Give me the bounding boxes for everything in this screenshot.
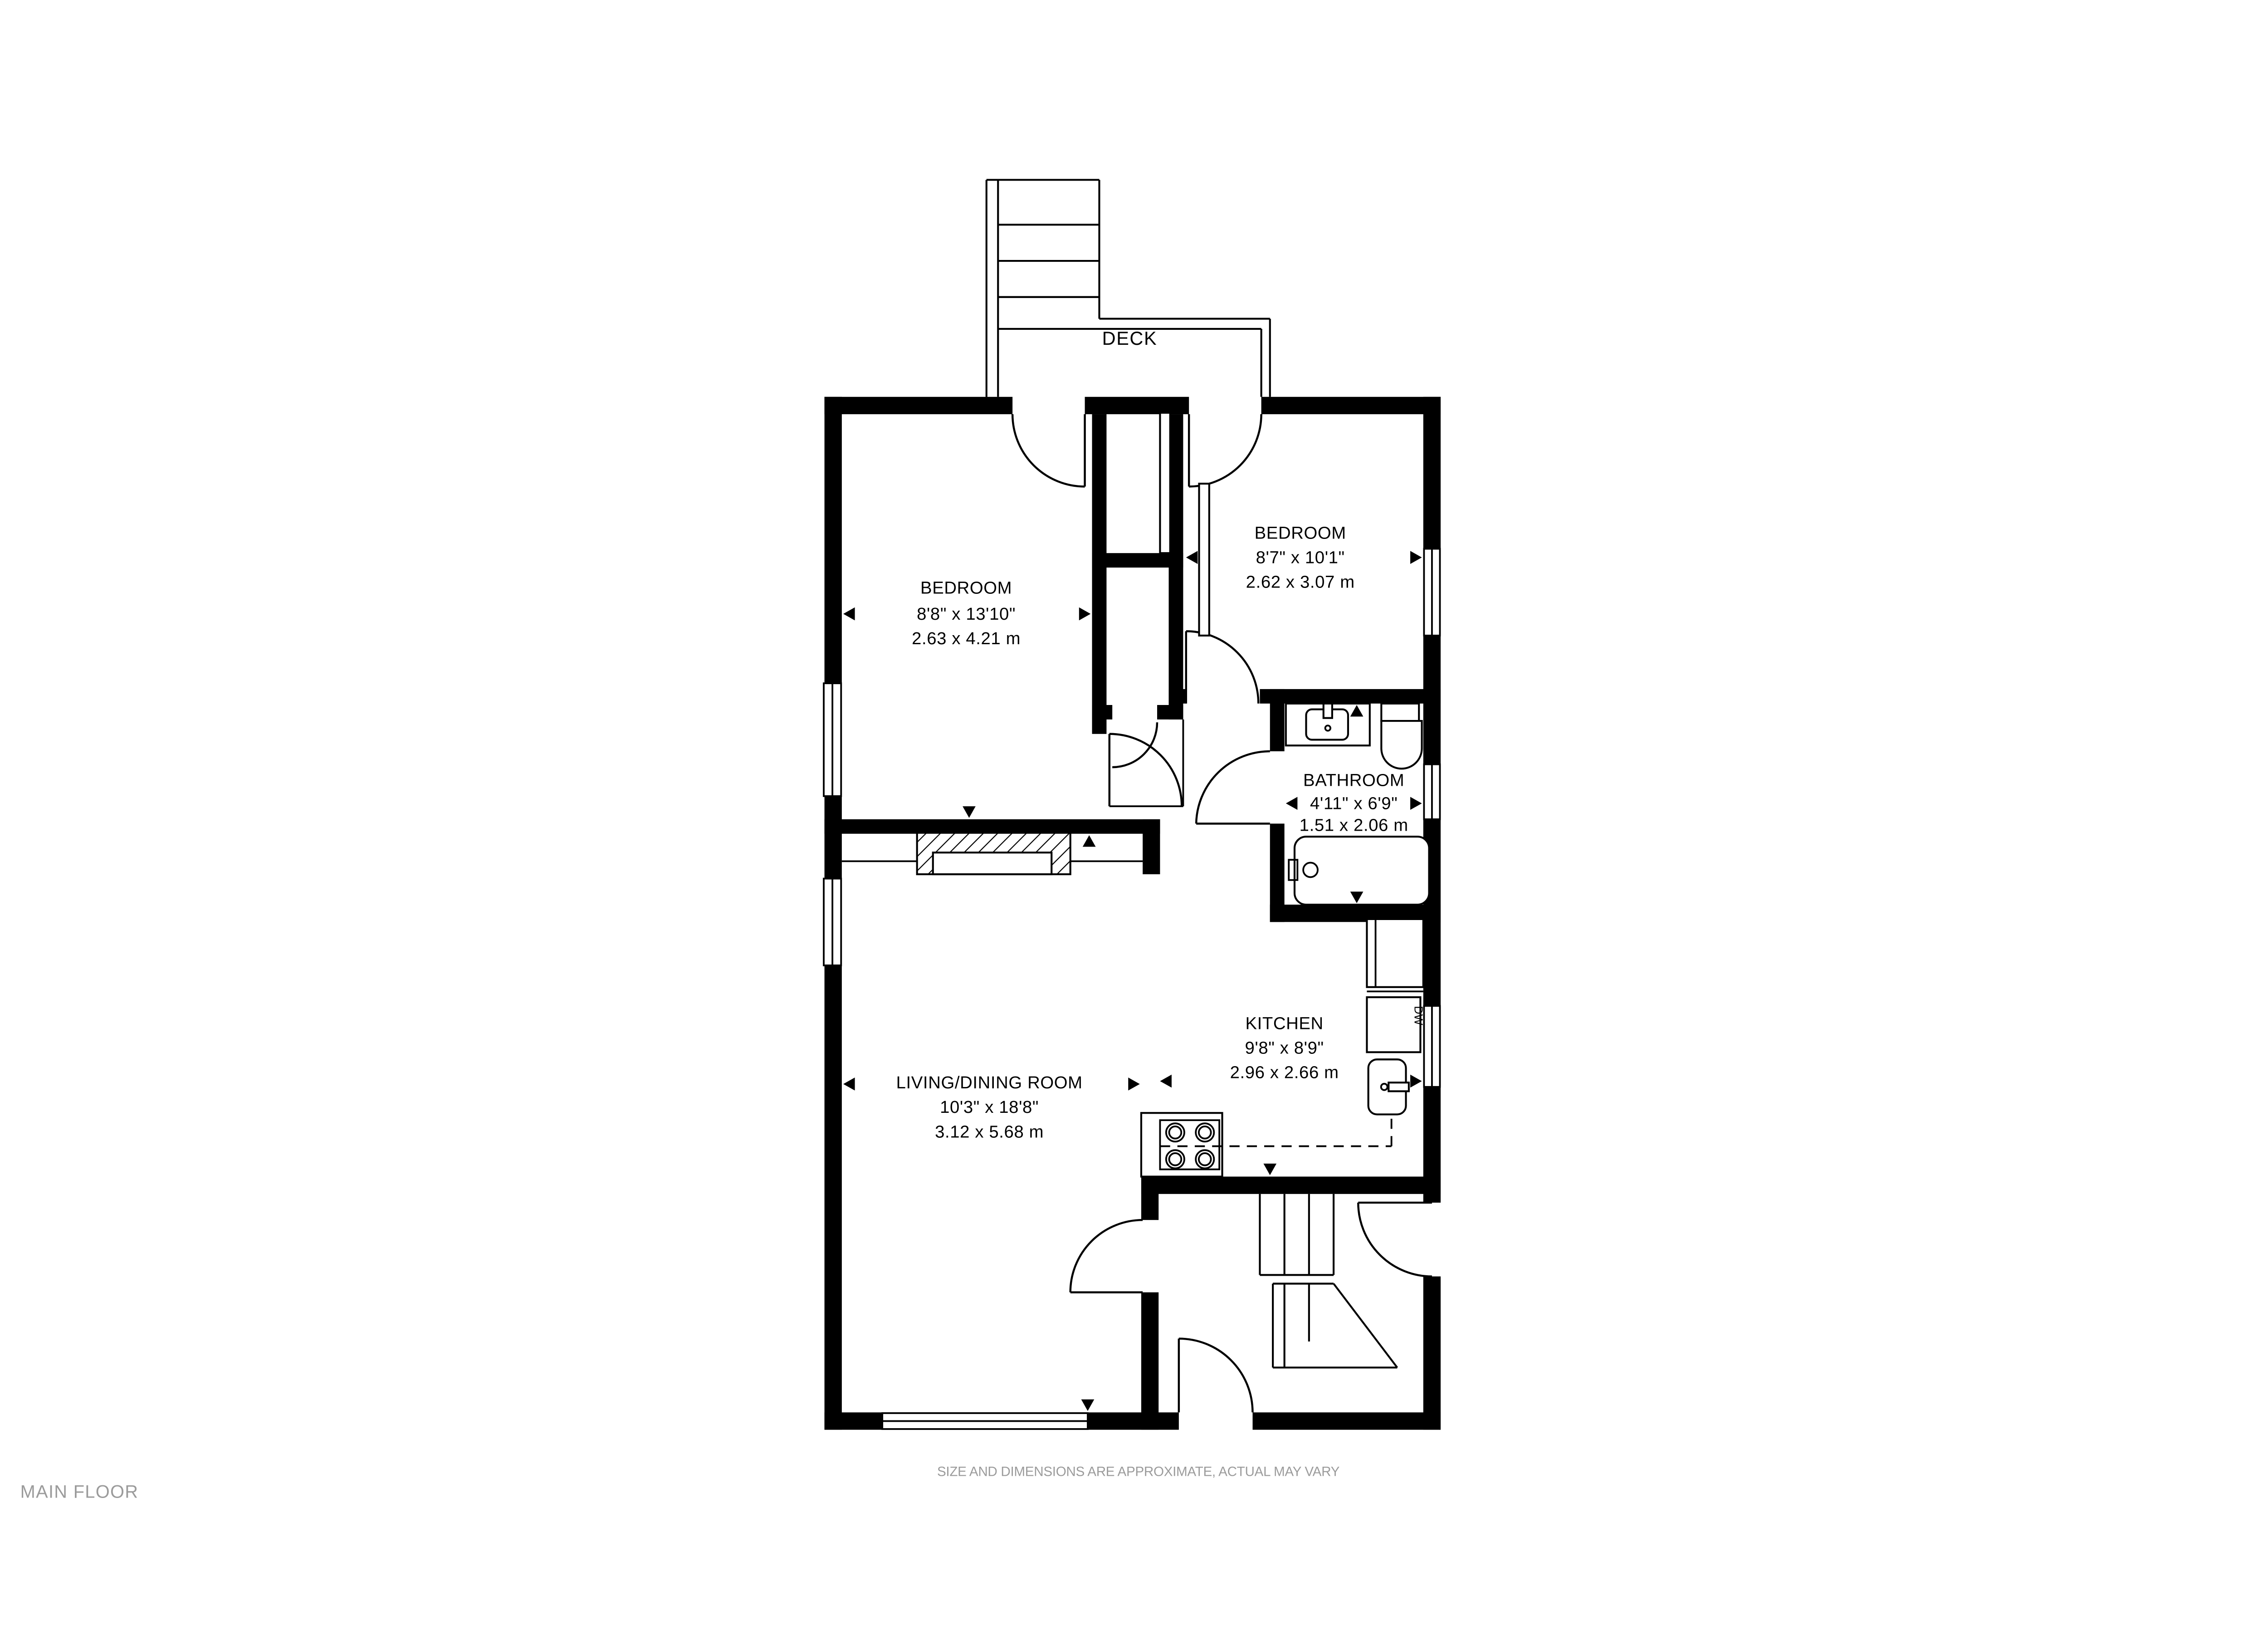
fireplace bbox=[917, 832, 1070, 874]
stair-cut-line bbox=[1334, 1284, 1397, 1368]
window-kitchen bbox=[1424, 1006, 1440, 1087]
wall-segment bbox=[1252, 1412, 1441, 1429]
room-dims-imperial: 9'8" x 8'9" bbox=[1245, 1038, 1324, 1057]
label-kitchen: KITCHEN 9'8" x 8'9" 2.96 x 2.66 m bbox=[1230, 1013, 1339, 1082]
dim-arrow-left bbox=[1160, 1075, 1172, 1088]
wall-segment bbox=[825, 965, 842, 1430]
floorplan-page: DECK bbox=[0, 0, 2268, 1640]
interior-walls bbox=[825, 414, 1441, 1430]
stove bbox=[1141, 1113, 1222, 1176]
room-name: BATHROOM bbox=[1303, 771, 1404, 790]
room-dims-metric: 2.63 x 4.21 m bbox=[912, 629, 1021, 648]
door-bedroom-right-hall bbox=[1186, 631, 1258, 703]
fireplace-firebox bbox=[933, 852, 1051, 874]
wall-segment bbox=[1088, 1412, 1179, 1429]
window-bathroom bbox=[1424, 764, 1440, 819]
wall-segment bbox=[1270, 689, 1285, 751]
label-living-dining: LIVING/DINING ROOM 10'3" x 18'8" 3.12 x … bbox=[896, 1073, 1083, 1141]
wall-segment bbox=[1157, 705, 1183, 720]
room-dims-imperial: 4'11" x 6'9" bbox=[1310, 794, 1398, 813]
room-dims-metric: 3.12 x 5.68 m bbox=[935, 1122, 1044, 1141]
door-entry-bottom bbox=[1179, 1339, 1253, 1413]
toilet-tank bbox=[1381, 704, 1419, 721]
dim-arrow-right bbox=[1128, 1077, 1140, 1091]
room-name: BEDROOM bbox=[1255, 523, 1346, 543]
wall-segment bbox=[825, 796, 842, 879]
window-bedroom-left bbox=[824, 683, 841, 796]
closet-door-panel bbox=[1160, 413, 1170, 553]
dim-arrow-left bbox=[1186, 551, 1198, 564]
dim-arrow-left bbox=[843, 1077, 855, 1091]
door-bedroom-left-hall bbox=[1110, 734, 1182, 806]
wall-segment bbox=[1423, 1277, 1441, 1430]
wall-segment bbox=[1169, 689, 1186, 704]
wall-segment bbox=[1261, 397, 1441, 414]
room-name: KITCHEN bbox=[1245, 1013, 1323, 1033]
door-hall-closet bbox=[1112, 722, 1157, 767]
wall-segment bbox=[1260, 689, 1441, 704]
room-dims-metric: 2.62 x 3.07 m bbox=[1246, 573, 1355, 592]
door-deck-to-bedroom-right bbox=[1189, 414, 1261, 486]
dim-arrow-down bbox=[963, 806, 976, 818]
dim-arrow-right bbox=[1410, 797, 1422, 810]
dim-arrow-right bbox=[1410, 1075, 1422, 1088]
wall-segment bbox=[1141, 1177, 1441, 1194]
dim-arrow-down bbox=[1081, 1400, 1095, 1411]
bathtub bbox=[1295, 837, 1429, 905]
floor-title: MAIN FLOOR bbox=[20, 1482, 139, 1502]
room-dims-imperial: 8'7" x 10'1" bbox=[1256, 548, 1345, 567]
door-bathroom bbox=[1196, 751, 1270, 823]
sink-faucet-icon bbox=[1324, 704, 1332, 718]
dim-arrow-left bbox=[843, 607, 855, 621]
label-bedroom-left: BEDROOM 8'8" x 13'10" 2.63 x 4.21 m bbox=[912, 578, 1021, 648]
kitchen-faucet-handle bbox=[1388, 1082, 1409, 1091]
dim-arrow-left bbox=[1286, 797, 1298, 810]
room-dims-metric: 1.51 x 2.06 m bbox=[1300, 815, 1408, 835]
wall-segment bbox=[1143, 819, 1160, 874]
wall-segment bbox=[1423, 397, 1441, 549]
dim-arrow-up bbox=[1083, 835, 1096, 847]
room-dims-metric: 2.96 x 2.66 m bbox=[1230, 1063, 1339, 1082]
window-bedroom-right bbox=[1424, 549, 1440, 636]
footer: MAIN FLOOR SIZE AND DIMENSIONS ARE APPRO… bbox=[20, 1464, 1340, 1502]
label-bathroom: BATHROOM 4'11" x 6'9" 1.51 x 2.06 m bbox=[1300, 771, 1408, 835]
label-bedroom-right: BEDROOM 8'7" x 10'1" 2.62 x 3.07 m bbox=[1246, 523, 1355, 592]
closet-door-panel bbox=[1199, 484, 1209, 636]
room-dims-imperial: 10'3" x 18'8" bbox=[940, 1097, 1039, 1117]
disclaimer-text: SIZE AND DIMENSIONS ARE APPROXIMATE, ACT… bbox=[937, 1464, 1340, 1479]
wall-segment bbox=[1092, 553, 1183, 568]
dim-arrow-right bbox=[1079, 607, 1091, 621]
dimension-arrows bbox=[843, 551, 1422, 1411]
deck: DECK bbox=[987, 180, 1270, 397]
window-living-bottom bbox=[882, 1413, 1088, 1429]
toilet-bowl bbox=[1381, 721, 1422, 769]
door-living-to-stair-hall bbox=[1070, 1220, 1143, 1292]
dim-arrow-right bbox=[1410, 551, 1422, 564]
wall-segment bbox=[1092, 705, 1113, 720]
door-side-entry bbox=[1358, 1203, 1432, 1277]
wall-segment bbox=[1092, 414, 1107, 734]
floorplan-canvas: DECK bbox=[0, 0, 2268, 1640]
wall-segment bbox=[1141, 1292, 1158, 1430]
dim-arrow-down bbox=[1263, 1164, 1276, 1175]
stairs bbox=[1260, 1194, 1397, 1368]
wall-segment bbox=[1085, 397, 1189, 414]
windows bbox=[824, 549, 1440, 1429]
room-name: LIVING/DINING ROOM bbox=[896, 1073, 1083, 1092]
wall-segment bbox=[825, 397, 842, 683]
room-name: BEDROOM bbox=[920, 578, 1012, 597]
window-living-left bbox=[824, 879, 841, 965]
deck-stairs bbox=[998, 225, 1099, 297]
wall-segment bbox=[825, 397, 1013, 414]
room-dims-imperial: 8'8" x 13'10" bbox=[917, 604, 1016, 624]
deck-outline bbox=[987, 180, 1270, 397]
closet-panels bbox=[1160, 413, 1209, 636]
door-deck-to-bedroom-left bbox=[1012, 414, 1085, 486]
deck-label: DECK bbox=[1102, 328, 1158, 349]
dishwasher-label: DW bbox=[1412, 1006, 1425, 1025]
